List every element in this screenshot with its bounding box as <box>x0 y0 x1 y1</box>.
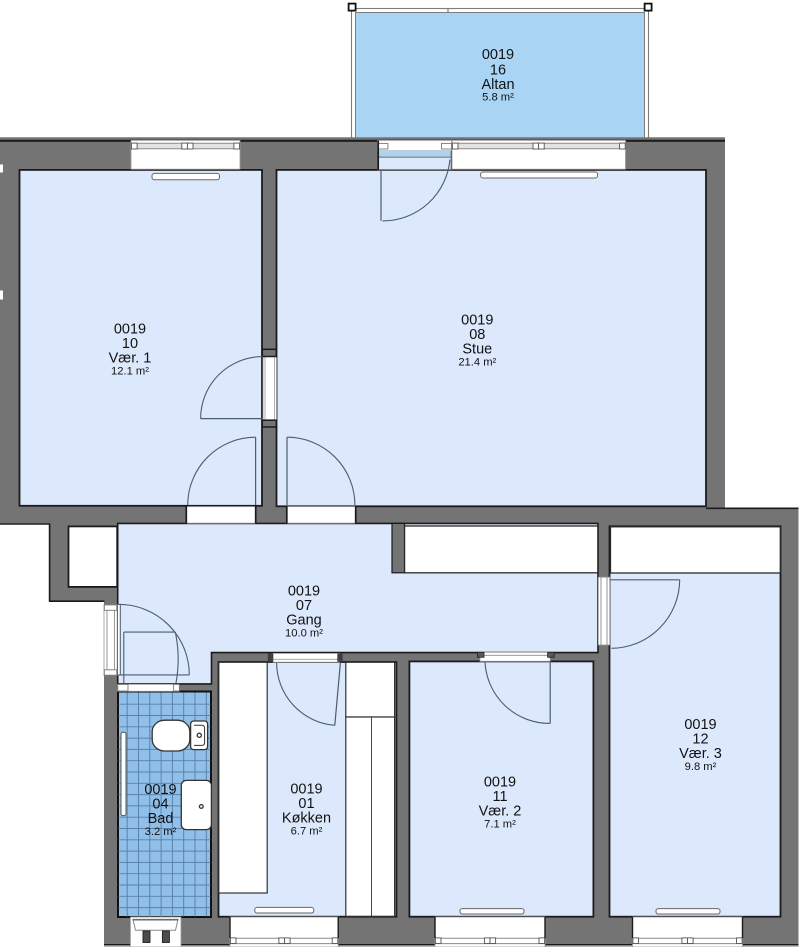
svg-text:Bad: Bad <box>148 811 174 827</box>
svg-text:5.8 m²: 5.8 m² <box>482 92 514 104</box>
svg-text:0019: 0019 <box>482 47 514 63</box>
svg-text:7.1 m²: 7.1 m² <box>484 819 516 831</box>
svg-text:10.0 m²: 10.0 m² <box>285 627 323 639</box>
svg-text:Vær. 2: Vær. 2 <box>479 804 522 820</box>
svg-text:6.7 m²: 6.7 m² <box>291 826 323 838</box>
svg-text:Køkken: Køkken <box>282 811 331 827</box>
svg-text:9.8 m²: 9.8 m² <box>685 761 717 773</box>
svg-text:3.2 m²: 3.2 m² <box>145 826 177 838</box>
svg-text:Stue: Stue <box>462 342 492 358</box>
svg-text:Vær. 1: Vær. 1 <box>109 350 152 366</box>
svg-text:12.1 m²: 12.1 m² <box>111 365 149 377</box>
svg-text:21.4 m²: 21.4 m² <box>458 357 496 369</box>
svg-text:Vær. 3: Vær. 3 <box>679 746 722 762</box>
svg-text:Gang: Gang <box>286 612 321 628</box>
